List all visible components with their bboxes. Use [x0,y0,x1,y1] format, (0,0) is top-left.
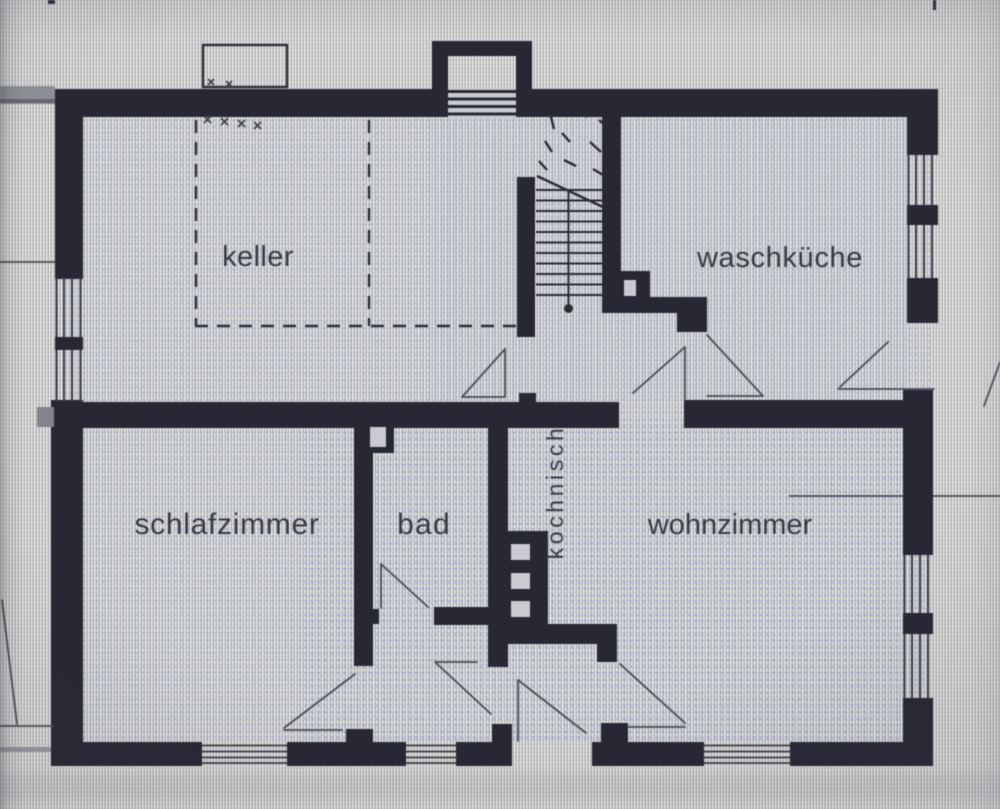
svg-text:wohnzimmer: wohnzimmer [647,509,813,541]
svg-text:bad: bad [397,508,451,541]
svg-text:kochnisch: kochnisch [542,425,568,560]
svg-text:waschküche: waschküche [696,242,863,274]
svg-text:keller: keller [222,241,294,273]
svg-text:schlafzimmer: schlafzimmer [134,508,319,541]
